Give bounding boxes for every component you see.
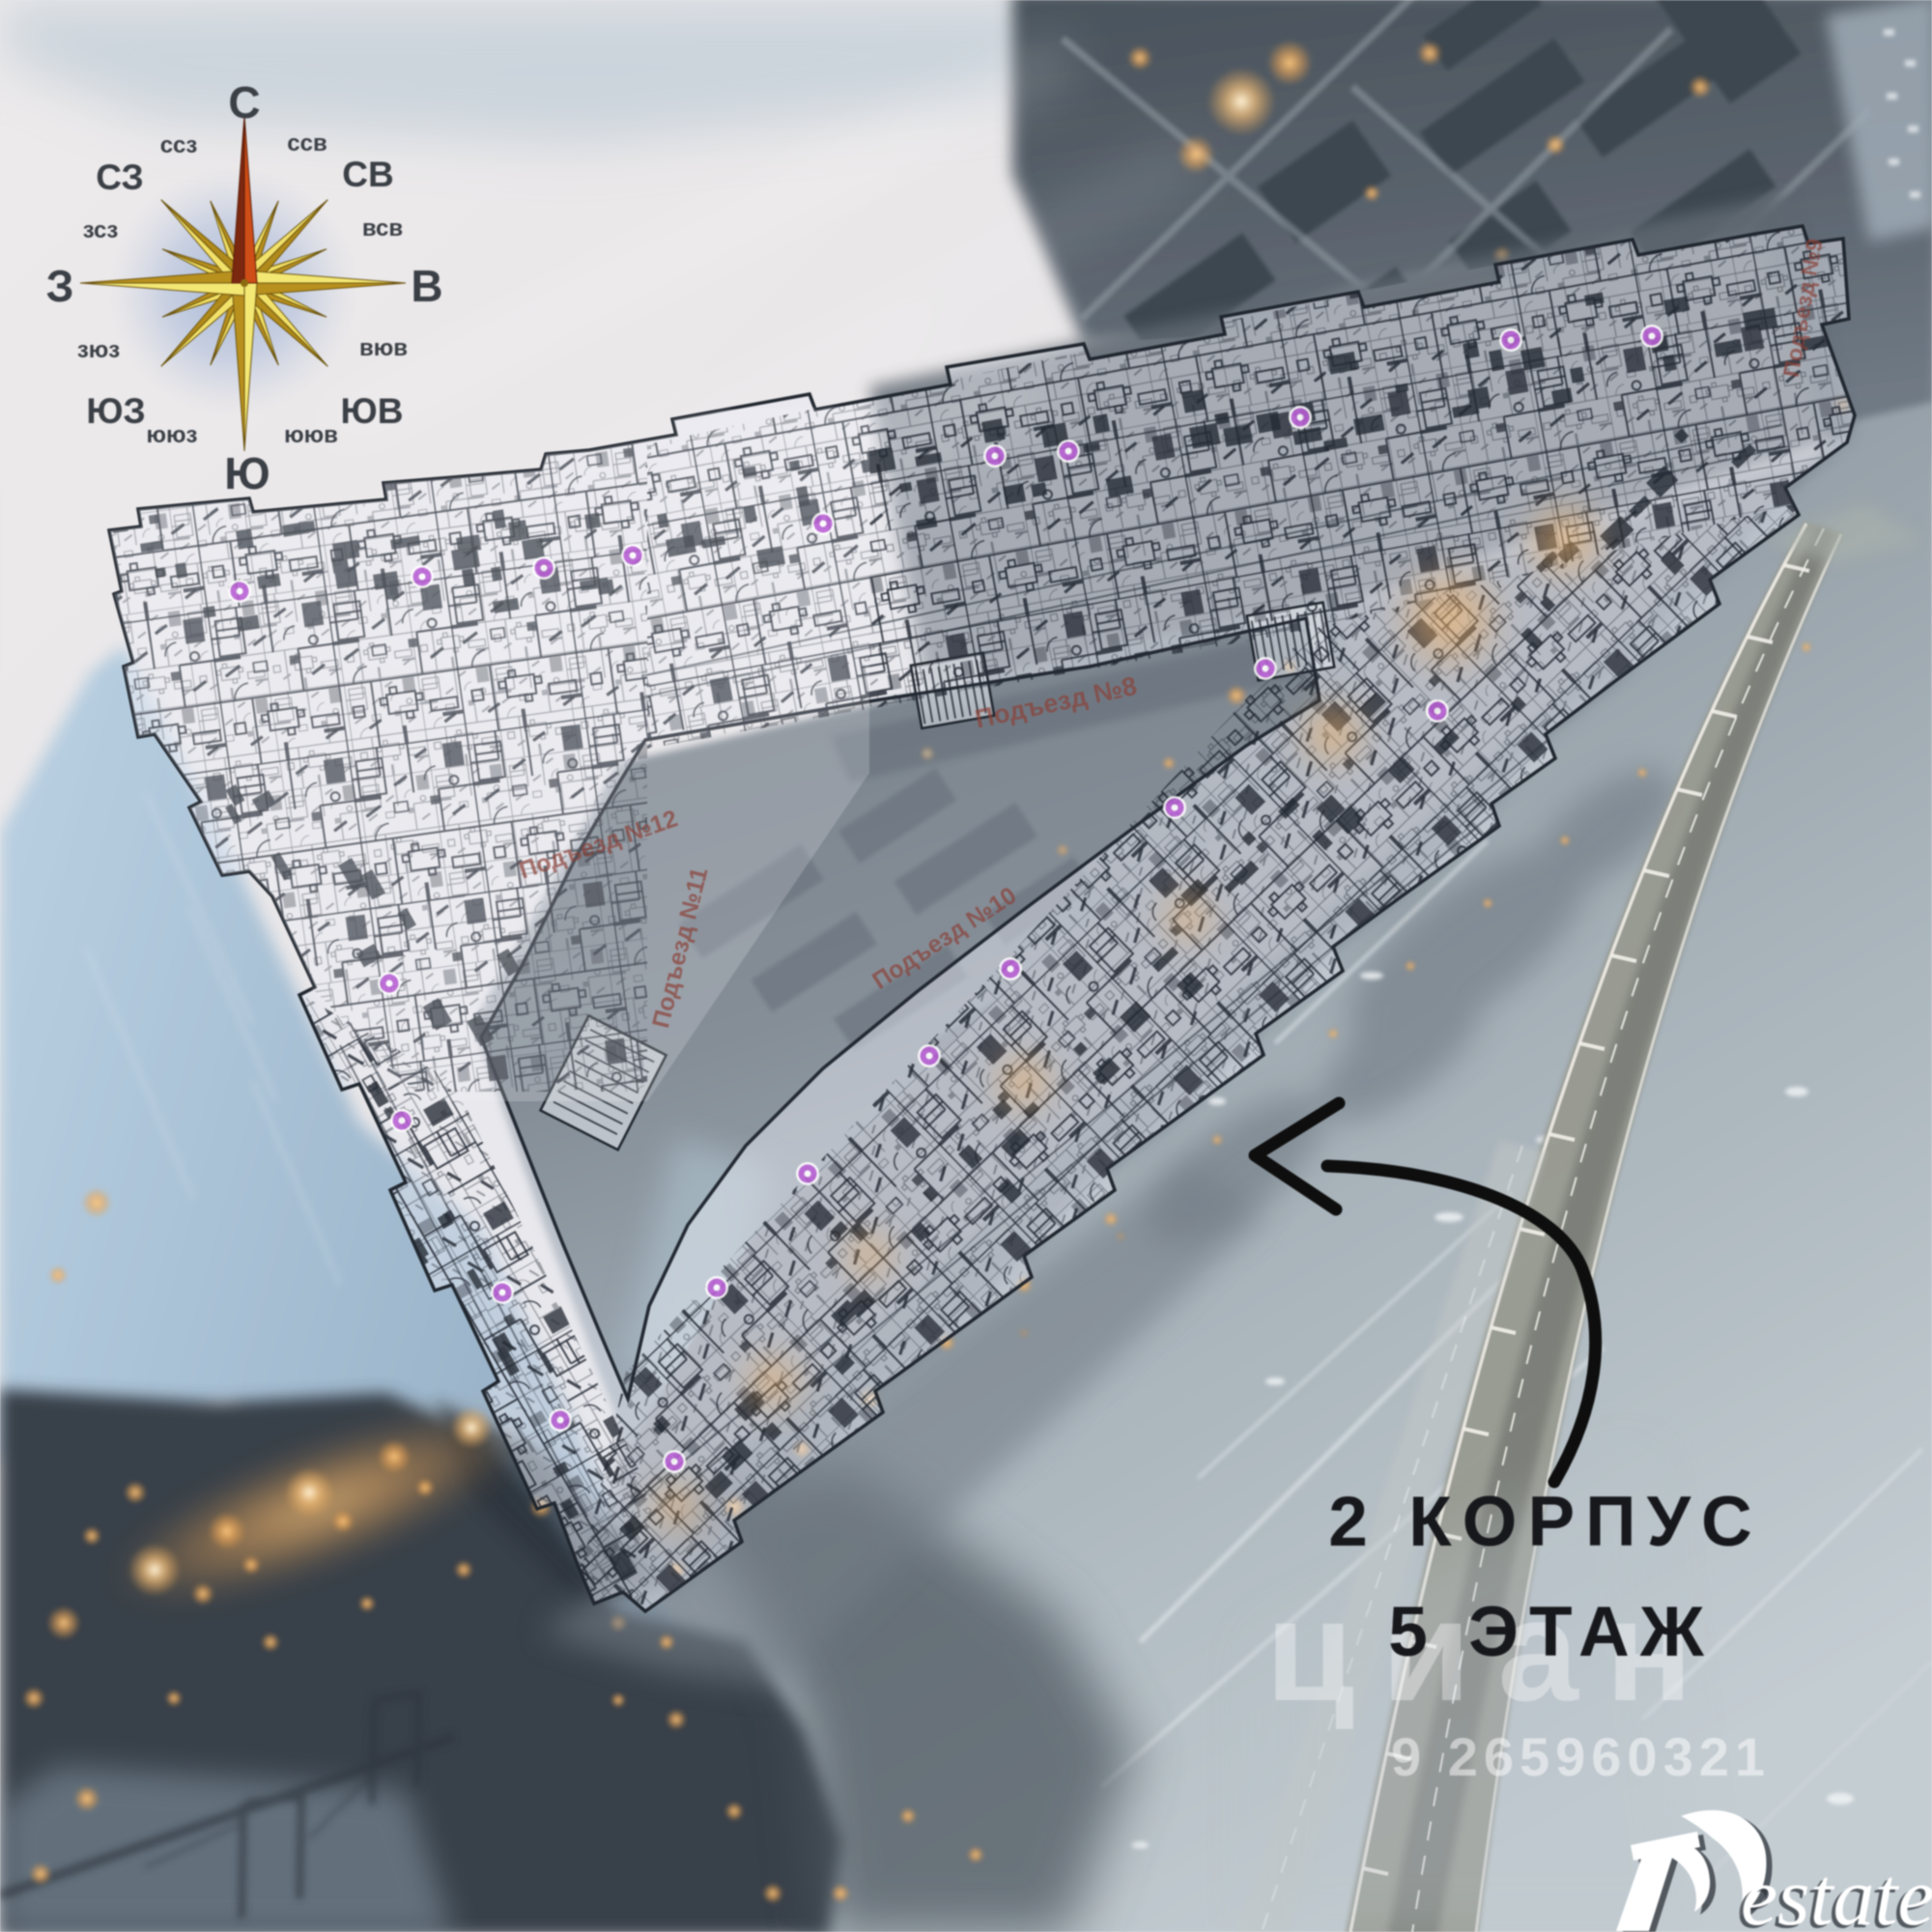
- svg-text:З: З: [46, 261, 74, 311]
- svg-text:9 265960321: 9 265960321: [1391, 1726, 1771, 1787]
- svg-text:вюв: вюв: [359, 335, 408, 361]
- svg-text:2 КОРПУС: 2 КОРПУС: [1328, 1483, 1763, 1561]
- svg-text:ююв: ююв: [284, 422, 338, 448]
- svg-text:Ю: Ю: [224, 448, 270, 498]
- svg-text:ссз: ссз: [160, 132, 198, 158]
- svg-text:ссв: ссв: [287, 130, 327, 156]
- svg-text:ююз: ююз: [147, 422, 198, 448]
- svg-text:СЗ: СЗ: [96, 157, 143, 197]
- svg-text:5 ЭТАЖ: 5 ЭТАЖ: [1388, 1593, 1715, 1671]
- svg-text:зсз: зсз: [83, 217, 119, 243]
- svg-text:ЮВ: ЮВ: [341, 391, 404, 431]
- svg-text:ЮЗ: ЮЗ: [86, 391, 145, 431]
- svg-text:СВ: СВ: [342, 155, 393, 194]
- svg-text:зюз: зюз: [77, 337, 120, 363]
- svg-text:estate: estate: [1741, 1850, 1932, 1932]
- svg-text:С: С: [228, 77, 260, 128]
- svg-text:всв: всв: [362, 215, 403, 241]
- svg-text:В: В: [411, 261, 442, 311]
